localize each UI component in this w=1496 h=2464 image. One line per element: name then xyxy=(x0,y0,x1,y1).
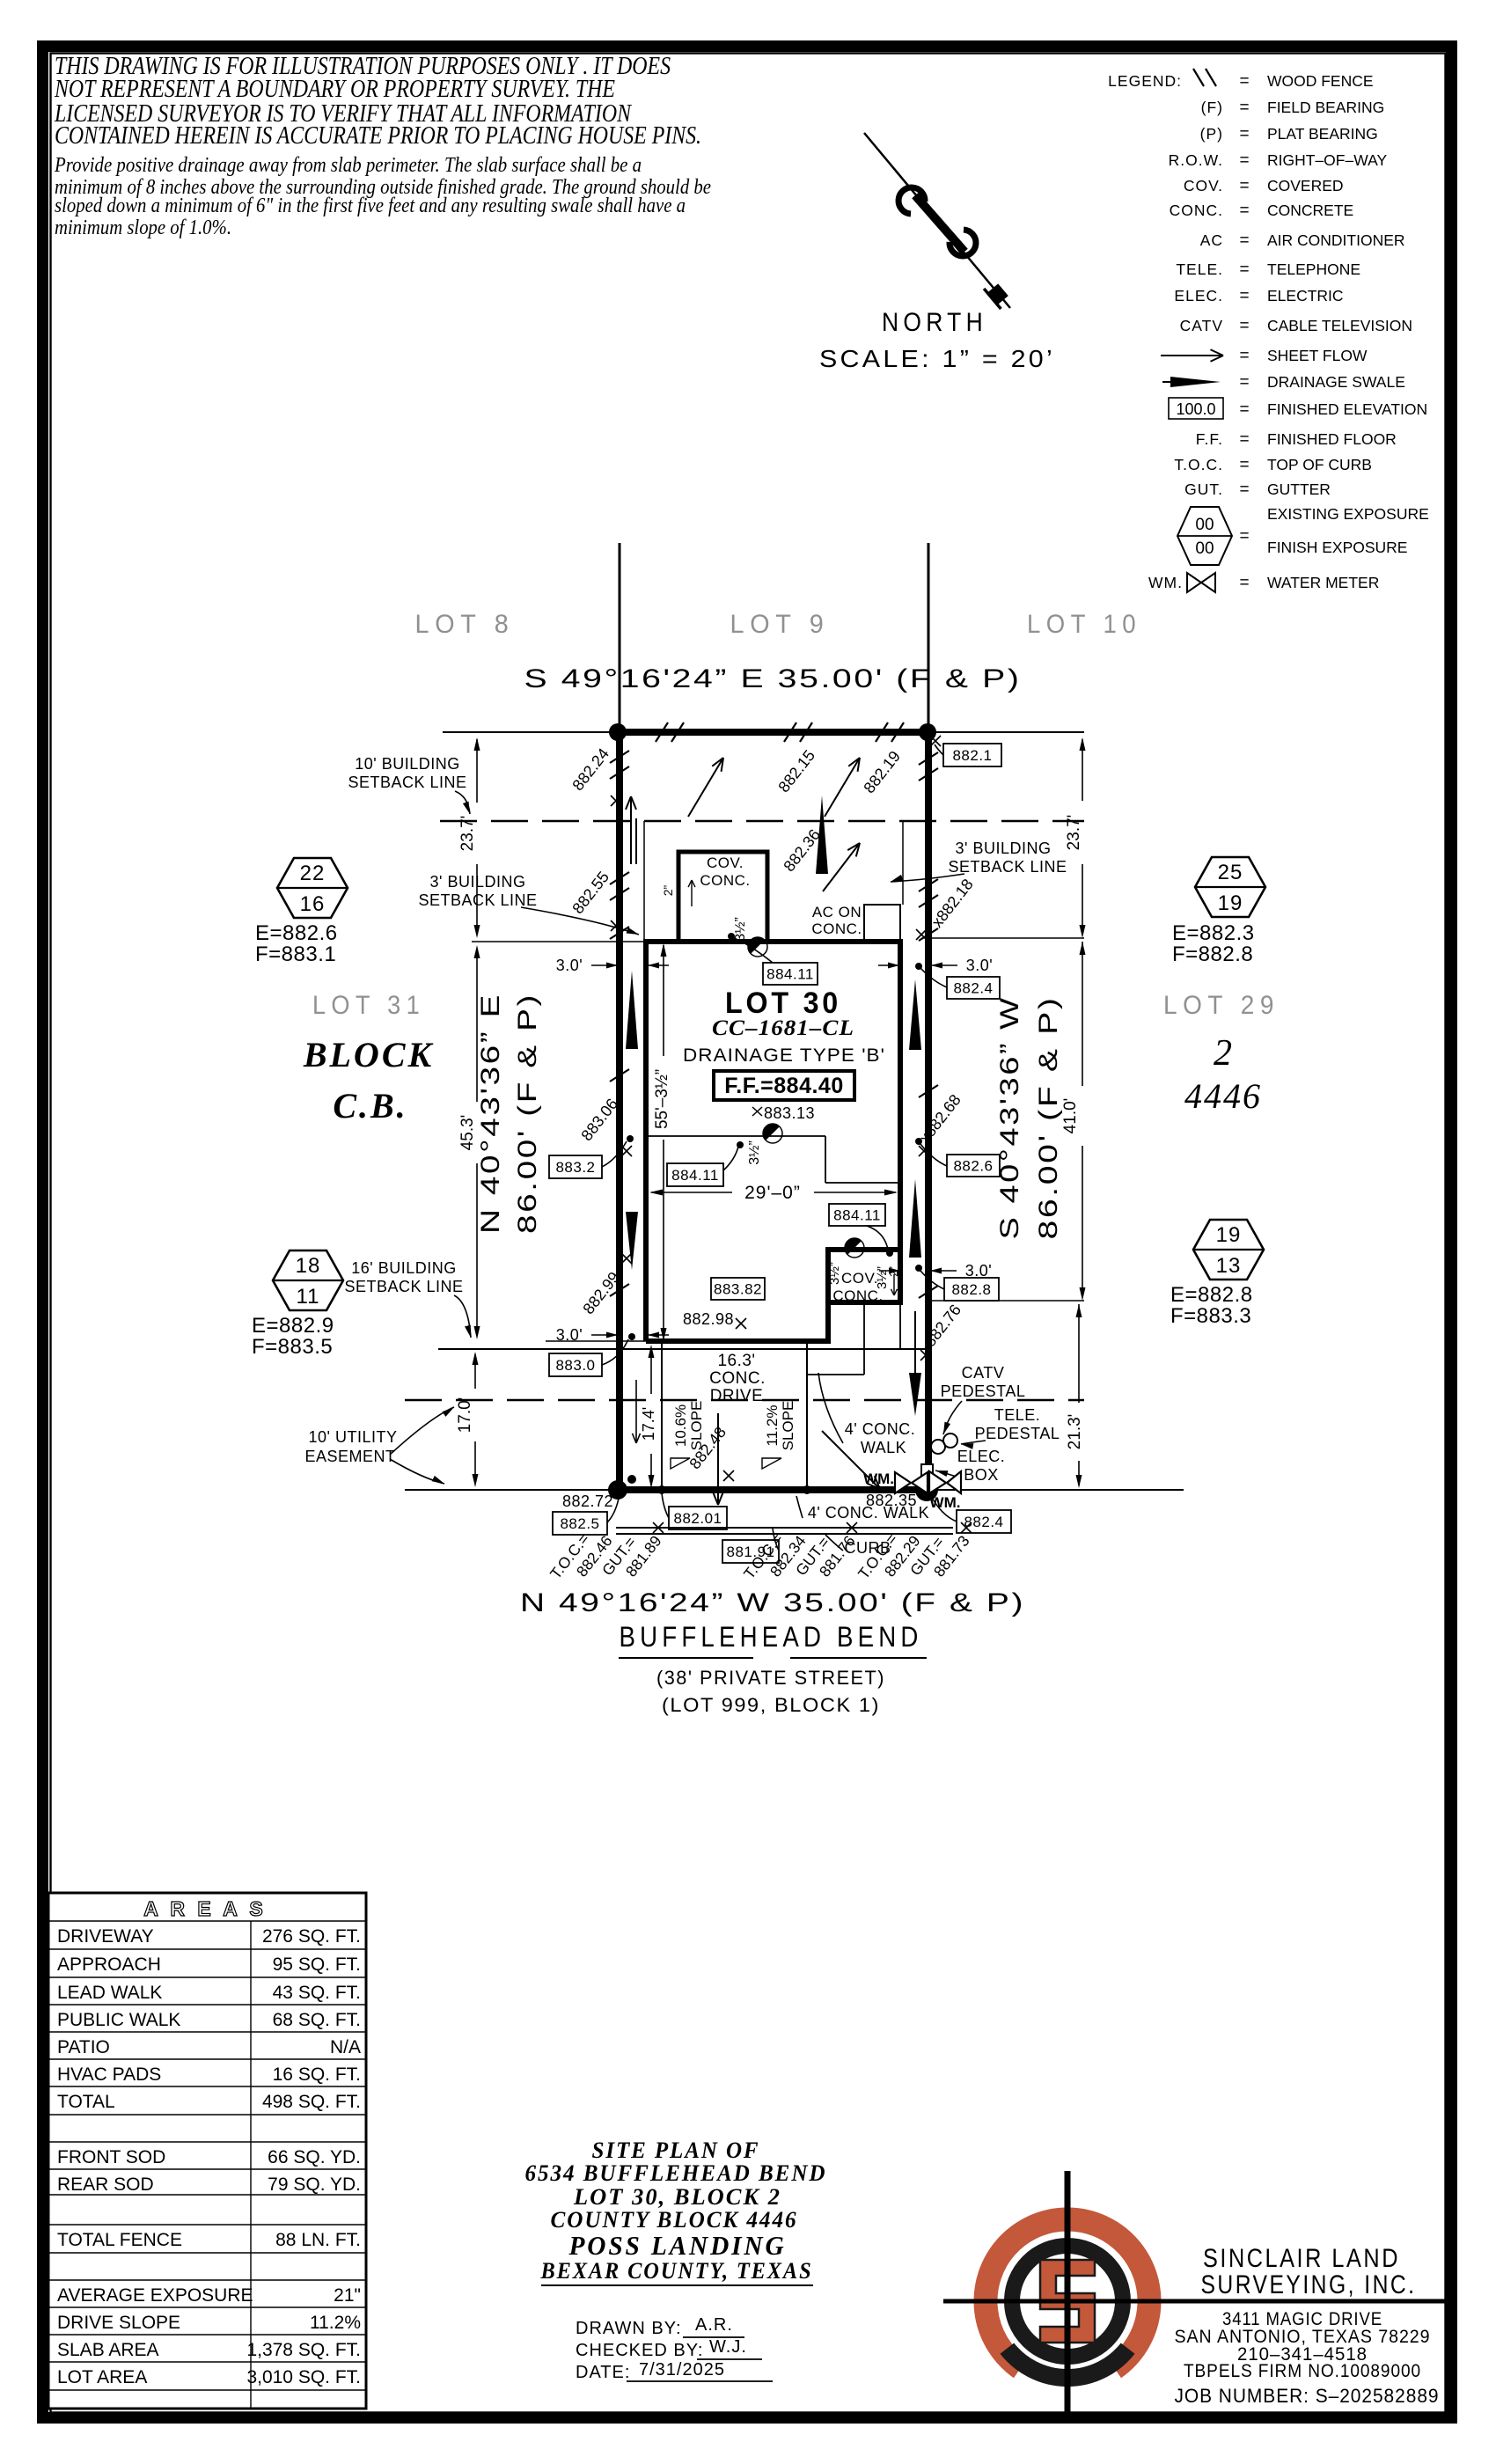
svg-text:10' UTILITY: 10' UTILITY xyxy=(309,1428,398,1446)
svg-text:882.5: 882.5 xyxy=(560,1515,599,1532)
svg-text:(F): (F) xyxy=(1201,99,1223,116)
svg-text:SINCLAIR LAND: SINCLAIR LAND xyxy=(1203,2244,1400,2273)
svg-text:JOB NUMBER: S–202582889: JOB NUMBER: S–202582889 xyxy=(1175,2385,1440,2407)
svg-text:FINISHED FLOOR: FINISHED FLOOR xyxy=(1267,430,1397,448)
svg-text:C.B.: C.B. xyxy=(333,1086,407,1126)
svg-text:TELE.: TELE. xyxy=(1176,260,1223,278)
svg-text:DRIVE: DRIVE xyxy=(710,1387,764,1405)
svg-text:3.0': 3.0' xyxy=(965,1262,992,1280)
svg-text:=: = xyxy=(1239,456,1249,474)
svg-text:WM.: WM. xyxy=(1148,574,1183,591)
svg-text:SURVEYING, INC.: SURVEYING, INC. xyxy=(1201,2270,1417,2299)
svg-text:S 40°43'36” W: S 40°43'36” W xyxy=(995,996,1024,1240)
svg-text:WALK: WALK xyxy=(861,1439,906,1456)
svg-text:45.3': 45.3' xyxy=(458,1115,477,1151)
svg-text:E=882.6: E=882.6 xyxy=(255,921,338,945)
svg-text:BUFFLEHEAD BEND: BUFFLEHEAD BEND xyxy=(620,1621,923,1653)
svg-text:APPROACH: APPROACH xyxy=(57,1954,161,1975)
svg-text:WM.: WM. xyxy=(930,1494,961,1511)
svg-text:29'–0”: 29'–0” xyxy=(744,1183,801,1203)
svg-text:N 40°43'36” E: N 40°43'36” E xyxy=(476,993,505,1234)
svg-text:=: = xyxy=(1239,574,1249,592)
svg-text:LEGEND:: LEGEND: xyxy=(1108,72,1182,90)
svg-text:FIELD BEARING: FIELD BEARING xyxy=(1267,99,1384,116)
svg-text:86.00' (F & P): 86.00' (F & P) xyxy=(1034,996,1063,1240)
svg-text:11.2%: 11.2% xyxy=(310,2313,361,2333)
svg-text:4446: 4446 xyxy=(1184,1076,1262,1116)
svg-text:25: 25 xyxy=(1218,861,1243,884)
svg-text:=: = xyxy=(1239,527,1249,546)
svg-text:ELEC.: ELEC. xyxy=(1174,287,1223,304)
svg-text:2: 2 xyxy=(1214,1033,1233,1074)
svg-text:3' BUILDING: 3' BUILDING xyxy=(430,873,526,891)
svg-text:1,378 SQ. FT.: 1,378 SQ. FT. xyxy=(246,2340,361,2360)
svg-text:DRAWN BY:: DRAWN BY: xyxy=(576,2319,682,2338)
svg-text:LOT 10: LOT 10 xyxy=(1027,610,1141,639)
svg-text:23.7': 23.7' xyxy=(458,816,477,852)
svg-text:00: 00 xyxy=(1195,516,1214,534)
svg-text:A.R.: A.R. xyxy=(695,2315,733,2335)
svg-text:88 LN. FT.: 88 LN. FT. xyxy=(275,2230,361,2250)
svg-text:SLAB AREA: SLAB AREA xyxy=(57,2340,159,2360)
svg-text:=: = xyxy=(1239,480,1249,499)
svg-text:DRIVEWAY: DRIVEWAY xyxy=(57,1926,154,1947)
svg-text:882.98: 882.98 xyxy=(683,1310,734,1328)
svg-text:11: 11 xyxy=(297,1285,320,1309)
svg-text:HVAC PADS: HVAC PADS xyxy=(57,2064,161,2085)
svg-text:SITE PLAN OF: SITE PLAN OF xyxy=(592,2138,760,2163)
svg-text:=: = xyxy=(1239,177,1249,195)
svg-text:COV.: COV. xyxy=(1184,177,1223,194)
svg-text:E=882.8: E=882.8 xyxy=(1170,1283,1253,1307)
svg-text:RIGHT–OF–WAY: RIGHT–OF–WAY xyxy=(1267,151,1387,169)
svg-text:F.F.=884.40: F.F.=884.40 xyxy=(724,1074,843,1098)
svg-text:3½”: 3½” xyxy=(827,1262,842,1285)
svg-text:10' BUILDING: 10' BUILDING xyxy=(355,755,459,773)
svg-text:22: 22 xyxy=(300,862,326,885)
svg-text:S 49°16'24” E 35.00' (F & P): S 49°16'24” E 35.00' (F & P) xyxy=(524,664,1022,693)
svg-text:(LOT 999, BLOCK 1): (LOT 999, BLOCK 1) xyxy=(662,1694,880,1716)
svg-text:884.11: 884.11 xyxy=(671,1167,719,1184)
svg-text:=: = xyxy=(1239,260,1249,279)
svg-text:=: = xyxy=(1239,231,1249,250)
svg-text:=: = xyxy=(1239,287,1249,305)
svg-text:21": 21" xyxy=(334,2285,361,2306)
svg-text:95 SQ. FT.: 95 SQ. FT. xyxy=(273,1954,361,1975)
svg-text:=: = xyxy=(1239,99,1249,117)
svg-text:DRAINAGE TYPE 'B': DRAINAGE TYPE 'B' xyxy=(683,1045,885,1066)
svg-text:883.0: 883.0 xyxy=(555,1357,595,1374)
svg-text:=: = xyxy=(1239,151,1249,170)
svg-text:AC: AC xyxy=(1200,231,1223,249)
svg-text:CC–1681–CL: CC–1681–CL xyxy=(712,1016,854,1040)
svg-text:10.6%: 10.6% xyxy=(672,1404,689,1447)
svg-text:TOP OF CURB: TOP OF CURB xyxy=(1267,456,1372,473)
svg-text:BEXAR COUNTY, TEXAS: BEXAR COUNTY, TEXAS xyxy=(540,2258,813,2284)
svg-text:W.J.: W.J. xyxy=(709,2337,747,2357)
svg-text:CATV: CATV xyxy=(962,1364,1005,1382)
svg-text:CONC.: CONC. xyxy=(1170,202,1223,219)
svg-text:=: = xyxy=(1239,202,1249,220)
svg-text:DATE:: DATE: xyxy=(576,2363,630,2382)
svg-text:3.0': 3.0' xyxy=(966,957,993,974)
svg-text:PUBLIC WALK: PUBLIC WALK xyxy=(57,2010,180,2030)
svg-text:WM.: WM. xyxy=(863,1470,894,1487)
svg-text:GUT.: GUT. xyxy=(1184,480,1223,498)
svg-text:SETBACK LINE: SETBACK LINE xyxy=(344,1278,463,1295)
svg-text:FINISH EXPOSURE: FINISH EXPOSURE xyxy=(1267,539,1407,556)
svg-text:16: 16 xyxy=(300,892,326,916)
svg-text:BOX: BOX xyxy=(964,1466,999,1484)
svg-text:CONCRETE: CONCRETE xyxy=(1267,202,1353,219)
svg-text:TBPELS FIRM NO.10089000: TBPELS FIRM NO.10089000 xyxy=(1184,2361,1421,2381)
svg-text:16' BUILDING: 16' BUILDING xyxy=(351,1259,456,1277)
svg-text:TOTAL FENCE: TOTAL FENCE xyxy=(57,2230,182,2250)
svg-text:SETBACK LINE: SETBACK LINE xyxy=(348,774,466,791)
svg-text:3½”: 3½” xyxy=(733,917,748,942)
svg-text:883.82: 883.82 xyxy=(714,1281,762,1298)
svg-text:SETBACK LINE: SETBACK LINE xyxy=(948,858,1067,876)
svg-text:AC ON: AC ON xyxy=(812,904,862,920)
svg-text:DRAINAGE SWALE: DRAINAGE SWALE xyxy=(1267,373,1405,391)
svg-text:F.F.: F.F. xyxy=(1196,430,1223,448)
svg-text:EXISTING EXPOSURE: EXISTING EXPOSURE xyxy=(1267,505,1429,523)
svg-text:(38' PRIVATE STREET): (38' PRIVATE STREET) xyxy=(656,1667,885,1689)
svg-text:COVERED: COVERED xyxy=(1267,177,1344,194)
svg-text:FINISHED ELEVATION: FINISHED ELEVATION xyxy=(1267,400,1427,418)
svg-text:00: 00 xyxy=(1195,539,1214,558)
svg-text:16 SQ. FT.: 16 SQ. FT. xyxy=(273,2064,361,2085)
svg-text:13: 13 xyxy=(1216,1254,1242,1278)
svg-text:884.11: 884.11 xyxy=(766,966,814,983)
svg-text:POSS LANDING: POSS LANDING xyxy=(568,2230,787,2261)
svg-text:=: = xyxy=(1239,72,1249,91)
svg-text:CABLE TELEVISION: CABLE TELEVISION xyxy=(1267,317,1412,334)
svg-text:LOT 9: LOT 9 xyxy=(730,610,830,639)
svg-text:CONC.: CONC. xyxy=(709,1369,766,1388)
svg-text:WATER METER: WATER METER xyxy=(1267,574,1379,591)
svg-text:WOOD FENCE: WOOD FENCE xyxy=(1267,72,1374,90)
svg-text:GUTTER: GUTTER xyxy=(1267,480,1331,498)
svg-text:F=882.8: F=882.8 xyxy=(1172,942,1253,966)
svg-text:3.0': 3.0' xyxy=(556,1326,583,1344)
svg-text:SHEET FLOW: SHEET FLOW xyxy=(1267,347,1368,364)
svg-text:BLOCK: BLOCK xyxy=(303,1035,434,1074)
svg-text:LOT 31: LOT 31 xyxy=(312,991,425,1020)
svg-text:=: = xyxy=(1239,347,1249,365)
svg-text:AVERAGE EXPOSURE: AVERAGE EXPOSURE xyxy=(57,2285,253,2306)
svg-text:882.6: 882.6 xyxy=(953,1158,993,1175)
svg-text:17.4': 17.4' xyxy=(640,1407,657,1441)
svg-text:PEDESTAL: PEDESTAL xyxy=(975,1425,1060,1442)
svg-text:3' BUILDING: 3' BUILDING xyxy=(956,840,1052,857)
svg-text:LOT 8: LOT 8 xyxy=(415,610,515,639)
svg-text:19: 19 xyxy=(1216,1223,1242,1247)
svg-text:sloped down a minimum of 6" in: sloped down a minimum of 6" in the first… xyxy=(55,194,686,217)
svg-text:16.3': 16.3' xyxy=(717,1352,755,1370)
svg-text:N/A: N/A xyxy=(330,2037,361,2057)
svg-text:21.3': 21.3' xyxy=(1066,1414,1084,1450)
svg-text:LOT AREA: LOT AREA xyxy=(57,2367,147,2387)
svg-text:18: 18 xyxy=(296,1254,321,1278)
svg-text:41.0': 41.0' xyxy=(1061,1098,1080,1134)
svg-text:23.7': 23.7' xyxy=(1065,815,1083,851)
svg-text:882.8: 882.8 xyxy=(951,1281,991,1298)
svg-text:CONC.: CONC. xyxy=(700,872,750,889)
svg-text:100.0: 100.0 xyxy=(1176,400,1215,418)
svg-text:883.2: 883.2 xyxy=(555,1159,595,1176)
svg-text:=: = xyxy=(1239,400,1249,419)
svg-text:E=882.3: E=882.3 xyxy=(1172,921,1255,945)
svg-text:7/31/2025: 7/31/2025 xyxy=(639,2360,725,2380)
svg-text:882.1: 882.1 xyxy=(952,747,992,764)
svg-text:PLAT BEARING: PLAT BEARING xyxy=(1267,125,1378,143)
svg-text:882.4: 882.4 xyxy=(953,980,993,997)
svg-text:3.0': 3.0' xyxy=(556,957,583,974)
svg-text:66 SQ. YD.: 66 SQ. YD. xyxy=(268,2147,361,2167)
svg-text:4' CONC. WALK: 4' CONC. WALK xyxy=(808,1504,929,1522)
svg-text:R.O.W.: R.O.W. xyxy=(1169,151,1223,169)
svg-text:F=883.3: F=883.3 xyxy=(1170,1304,1251,1328)
svg-text:19: 19 xyxy=(1218,891,1243,915)
svg-text:55'–3½”: 55'–3½” xyxy=(653,1069,671,1129)
svg-text:E=882.9: E=882.9 xyxy=(252,1314,334,1338)
svg-text:EASEMENT: EASEMENT xyxy=(304,1448,395,1465)
svg-text:11.2%: 11.2% xyxy=(764,1405,781,1447)
svg-text:(P): (P) xyxy=(1200,125,1223,143)
svg-text:PEDESTAL: PEDESTAL xyxy=(941,1382,1026,1400)
svg-text:79 SQ. YD.: 79 SQ. YD. xyxy=(268,2174,361,2195)
svg-text:LOT 30, BLOCK 2: LOT 30, BLOCK 2 xyxy=(573,2184,781,2210)
svg-text:SETBACK LINE: SETBACK LINE xyxy=(418,891,537,909)
svg-text:T.O.C.: T.O.C. xyxy=(1174,456,1223,473)
svg-text:882.4: 882.4 xyxy=(964,1514,1003,1530)
svg-text:FRONT SOD: FRONT SOD xyxy=(57,2147,165,2167)
svg-text:minimum slope of 1.0%.: minimum slope of 1.0%. xyxy=(55,216,231,239)
svg-text:86.00' (F & P): 86.00' (F & P) xyxy=(513,993,542,1234)
svg-text:Provide positive drainage away: Provide positive drainage away from slab… xyxy=(54,154,642,177)
svg-text:F=883.1: F=883.1 xyxy=(255,942,336,966)
svg-text:TOTAL: TOTAL xyxy=(57,2092,115,2112)
svg-text:CATV: CATV xyxy=(1180,317,1223,334)
svg-text:F=883.5: F=883.5 xyxy=(252,1335,333,1359)
svg-text:AIR CONDITIONER: AIR CONDITIONER xyxy=(1267,231,1405,249)
svg-text:COUNTY BLOCK 4446: COUNTY BLOCK 4446 xyxy=(551,2207,798,2233)
svg-text:=: = xyxy=(1239,373,1249,392)
svg-text:LOT 30: LOT 30 xyxy=(725,986,841,1020)
svg-text:REAR SOD: REAR SOD xyxy=(57,2174,154,2195)
svg-text:TELE.: TELE. xyxy=(994,1406,1041,1424)
svg-text:NOT REPRESENT A BOUNDARY OR PR: NOT REPRESENT A BOUNDARY OR PROPERTY SUR… xyxy=(54,76,615,103)
svg-text:SLOPE: SLOPE xyxy=(780,1401,796,1451)
svg-text:2”: 2” xyxy=(661,884,675,896)
svg-text:A R E A S: A R E A S xyxy=(143,1897,267,1920)
svg-text:882.01: 882.01 xyxy=(674,1510,722,1527)
svg-text:LOT 29: LOT 29 xyxy=(1163,991,1280,1020)
svg-text:498 SQ. FT.: 498 SQ. FT. xyxy=(262,2092,361,2112)
svg-text:=: = xyxy=(1239,125,1249,143)
svg-text:DRIVE SLOPE: DRIVE SLOPE xyxy=(57,2313,180,2333)
svg-text:ELEC.: ELEC. xyxy=(957,1448,1006,1465)
svg-text:6534 BUFFLEHEAD BEND: 6534 BUFFLEHEAD BEND xyxy=(525,2160,827,2186)
svg-text:=: = xyxy=(1239,430,1249,449)
svg-text:17.0': 17.0' xyxy=(456,1397,474,1434)
svg-text:COV.: COV. xyxy=(841,1270,878,1287)
svg-text:4' CONC.: 4' CONC. xyxy=(845,1420,915,1438)
svg-text:43 SQ. FT.: 43 SQ. FT. xyxy=(273,1983,361,2003)
svg-text:NORTH: NORTH xyxy=(882,308,987,337)
svg-text:PATIO: PATIO xyxy=(57,2037,110,2057)
svg-text:CONC.: CONC. xyxy=(811,920,862,937)
svg-text:LEAD WALK: LEAD WALK xyxy=(57,1983,162,2003)
svg-text:=: = xyxy=(1239,317,1249,335)
svg-text:ELECTRIC: ELECTRIC xyxy=(1267,287,1344,304)
svg-text:3½”: 3½” xyxy=(747,1140,762,1165)
svg-text:68 SQ. FT.: 68 SQ. FT. xyxy=(273,2010,361,2030)
svg-text:882.72: 882.72 xyxy=(562,1492,613,1510)
svg-text:TELEPHONE: TELEPHONE xyxy=(1267,260,1360,278)
svg-text:3,010 SQ. FT.: 3,010 SQ. FT. xyxy=(246,2367,361,2387)
svg-text:CHECKED BY:: CHECKED BY: xyxy=(576,2341,703,2360)
svg-text:884.11: 884.11 xyxy=(833,1207,881,1224)
svg-text:276 SQ. FT.: 276 SQ. FT. xyxy=(262,1926,361,1947)
svg-text:N 49°16'24” W 35.00' (F & P): N 49°16'24” W 35.00' (F & P) xyxy=(520,1588,1025,1617)
svg-text:CONTAINED HEREIN IS ACCURATE P: CONTAINED HEREIN IS ACCURATE PRIOR TO PL… xyxy=(55,122,701,150)
svg-text:883.13: 883.13 xyxy=(764,1104,815,1122)
svg-text:SCALE: 1” = 20’: SCALE: 1” = 20’ xyxy=(819,345,1055,372)
svg-text:COV.: COV. xyxy=(707,854,744,871)
